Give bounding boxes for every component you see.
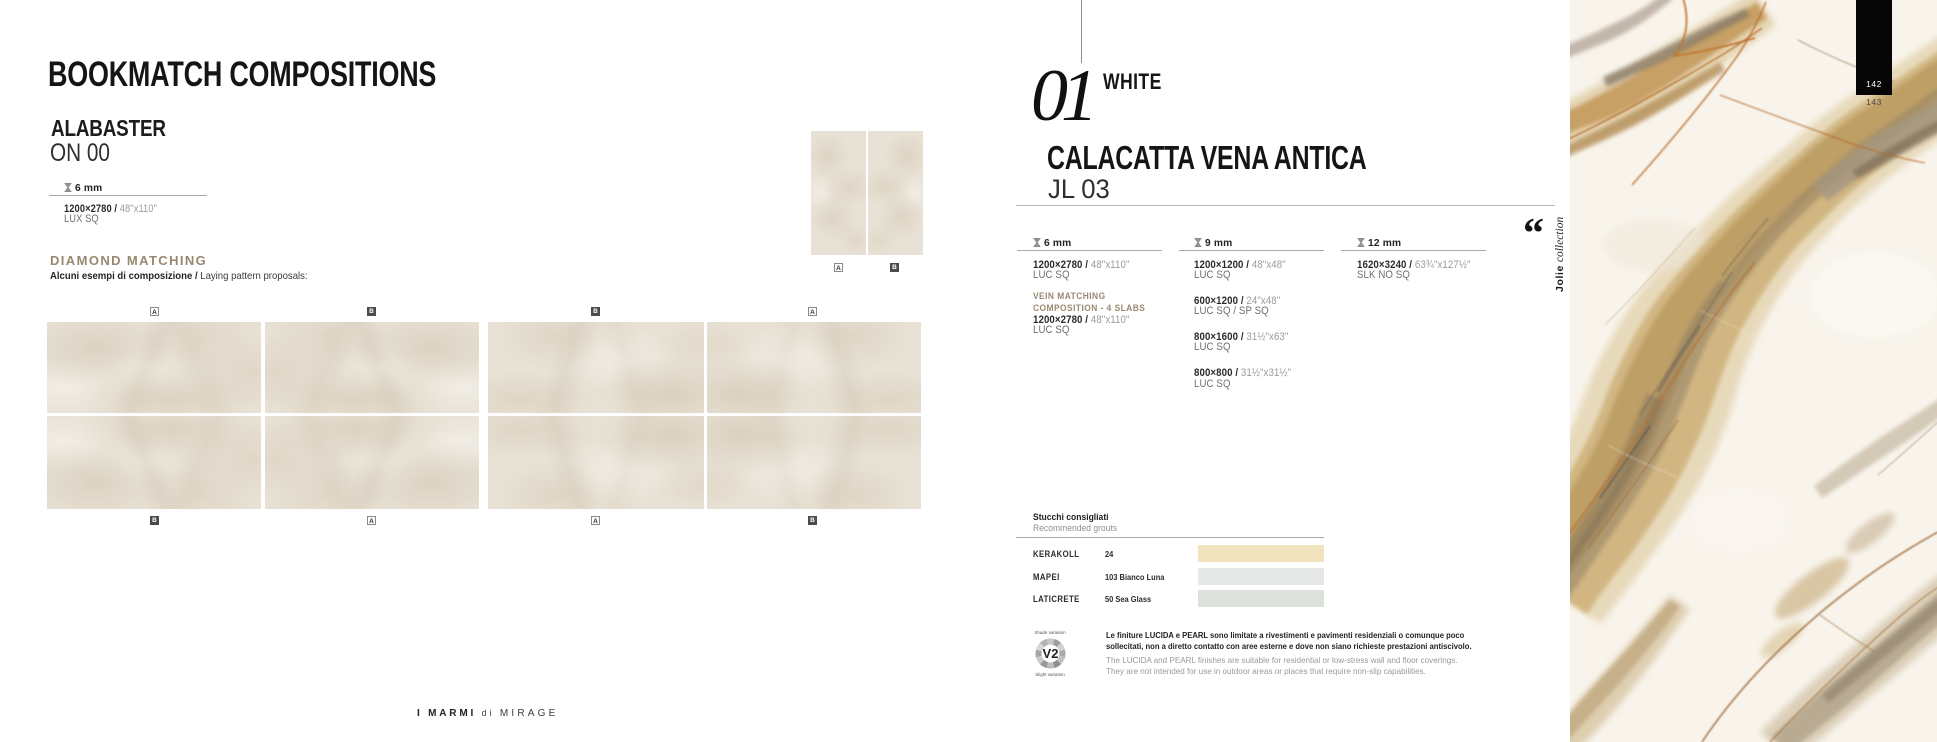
svg-text:V2: V2 bbox=[1043, 646, 1059, 661]
